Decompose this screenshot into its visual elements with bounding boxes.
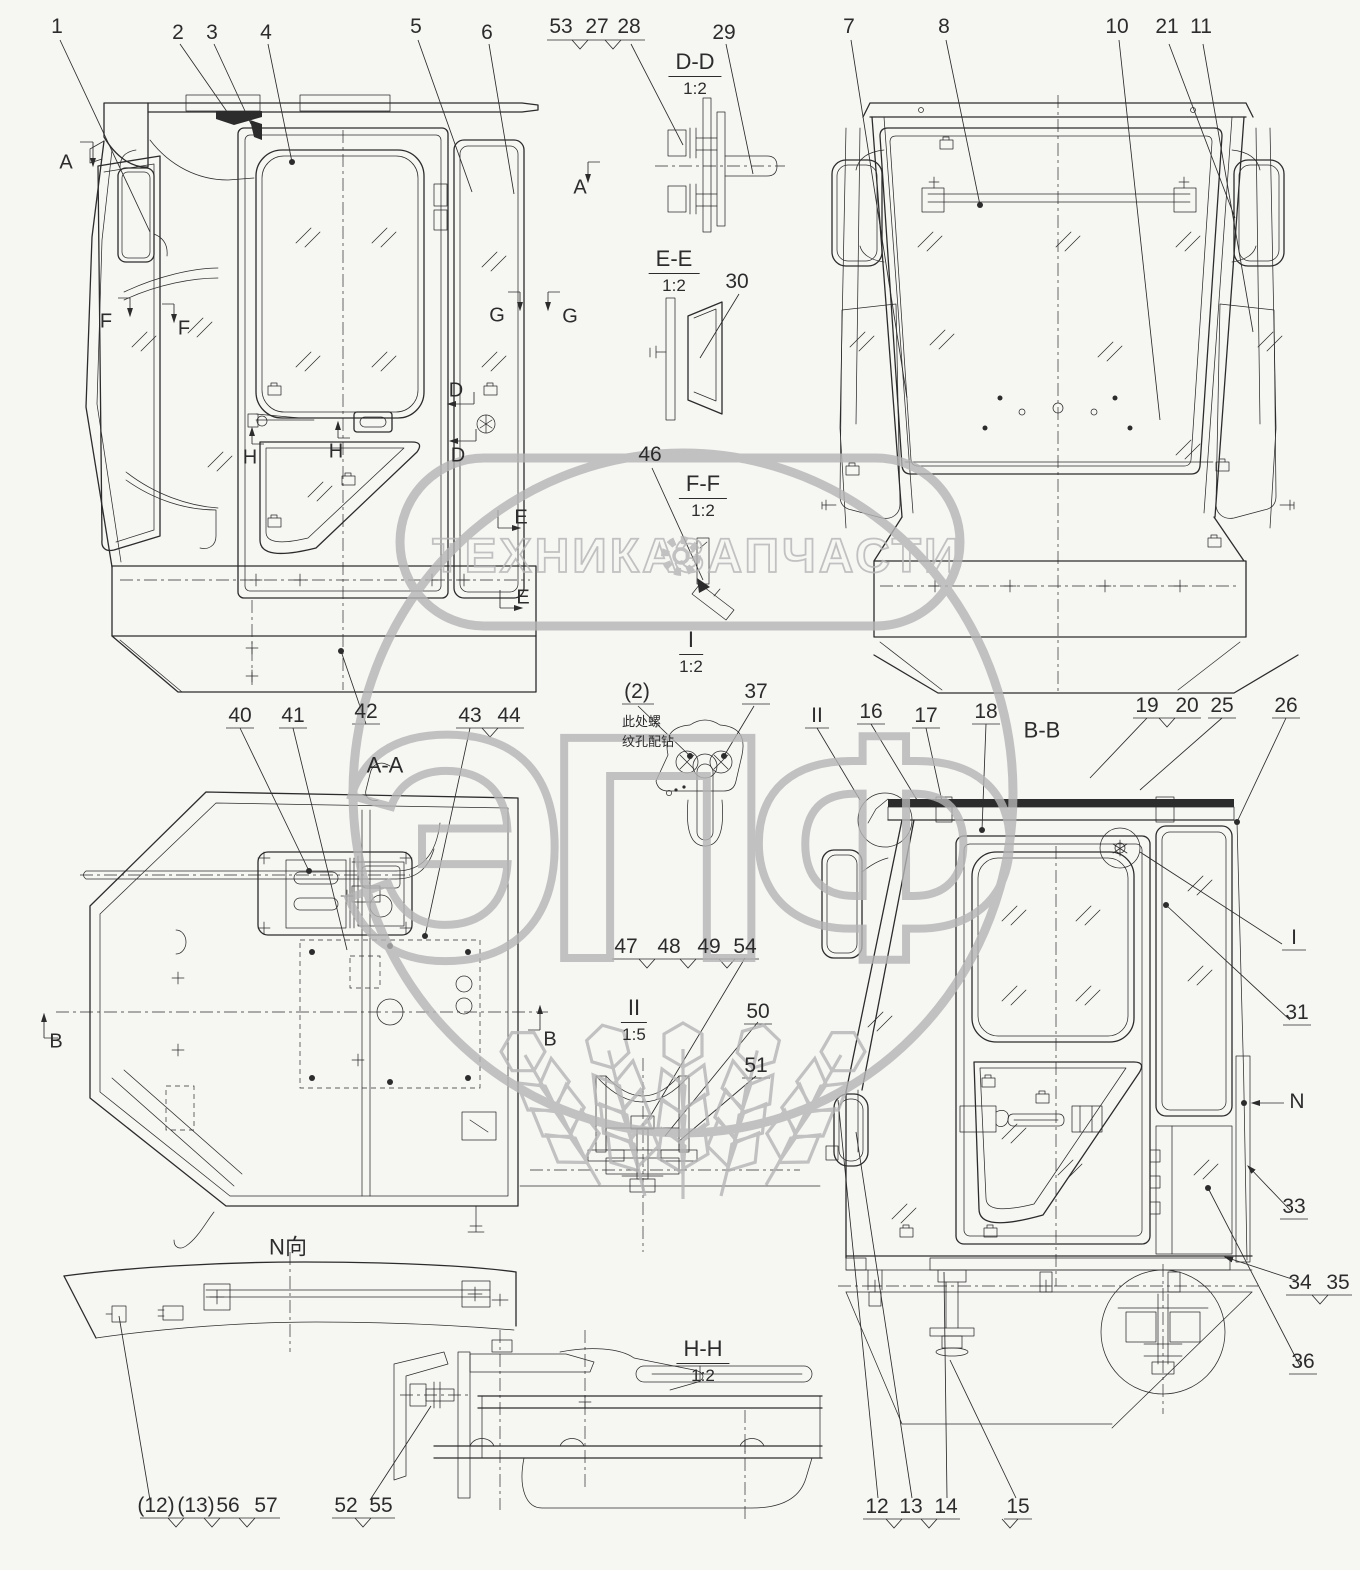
- detail-section-D-D: [655, 98, 785, 232]
- watermark-brand-left: ТЕХНИКА: [432, 530, 679, 583]
- view-cab-left-side: [80, 95, 600, 692]
- watermark-brand-right: ЗАПЧАСТИ: [674, 530, 961, 583]
- cab-assembly-drawing: ТЕХНИКА ЗАПЧАСТИ ЭПФ: [0, 0, 1360, 1570]
- engineering-drawing-canvas: ТЕХНИКА ЗАПЧАСТИ ЭПФ 1234565327282978102…: [0, 0, 1360, 1570]
- detail-section-E-E: [650, 298, 722, 420]
- watermark-logo-letters: ЭПФ: [340, 668, 1013, 1026]
- view-N-direction: [64, 1252, 516, 1352]
- watermark-wheat-ears: [490, 1019, 875, 1202]
- view-cab-rear: [822, 95, 1298, 695]
- watermark-logo: ТЕХНИКА ЗАПЧАСТИ ЭПФ: [340, 453, 1013, 1202]
- detail-section-H-H: [394, 1330, 822, 1520]
